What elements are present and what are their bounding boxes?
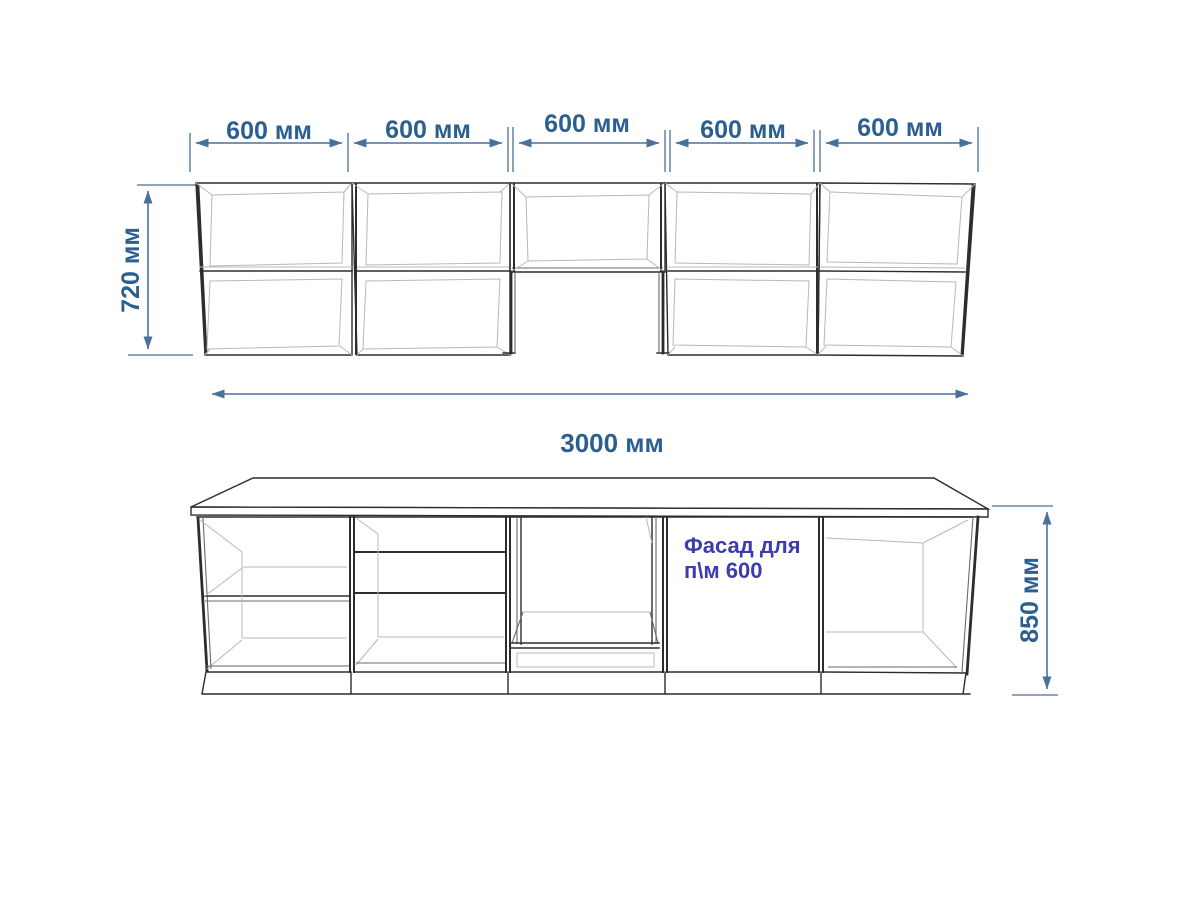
dimension-lower-height: 850 мм [992, 506, 1058, 695]
facade-note-line-2: п\м 600 [684, 558, 763, 583]
lower-cabinets-row: Фасад для п\м 600 [191, 478, 988, 694]
lower-divider-1 [350, 517, 354, 672]
kitchen-elevation-page: 600 мм 600 мм 600 мм 600 мм 600 мм 720 м… [0, 0, 1200, 900]
dimension-upper-height: 720 мм [117, 185, 197, 355]
dim-label-seg3: 600 мм [544, 110, 630, 138]
dim-label-720: 720 мм [117, 227, 145, 313]
dim-label-3000: 3000 мм [560, 428, 664, 458]
lower-cabinet-3-oven-cavity [510, 517, 663, 672]
countertop [191, 478, 988, 517]
upper-cabinet-5 [818, 183, 975, 356]
plinth [202, 672, 970, 694]
dimension-total-width: 3000 мм [212, 394, 968, 458]
lower-cabinet-4-dishwasher-facade: Фасад для п\м 600 [667, 533, 819, 672]
lower-cabinet-1-shelf-unit [198, 518, 350, 672]
dim-label-seg1: 600 мм [226, 117, 312, 145]
dim-label-seg2: 600 мм [385, 116, 471, 144]
upper-cabinet-1 [196, 183, 352, 355]
upper-cabinets-row [196, 183, 975, 356]
dimension-upper-segments: 600 мм 600 мм 600 мм 600 мм 600 мм [190, 110, 978, 172]
lower-divider-3 [663, 517, 667, 672]
lower-divider-4 [819, 517, 823, 672]
upper-side-panels-below-hood [503, 272, 669, 353]
upper-cabinet-4 [665, 183, 820, 355]
lower-divider-2 [506, 517, 510, 672]
dim-label-seg4: 600 мм [700, 116, 786, 144]
facade-note-line-1: Фасад для [684, 533, 801, 558]
upper-cabinet-2 [352, 183, 510, 355]
dim-label-seg5: 600 мм [857, 114, 943, 142]
upper-cabinet-3-hood [510, 183, 665, 272]
lower-cabinet-5-open-unit [823, 517, 978, 674]
dim-label-850: 850 мм [1016, 557, 1044, 643]
kitchen-elevation-drawing: 600 мм 600 мм 600 мм 600 мм 600 мм 720 м… [0, 0, 1200, 900]
lower-cabinet-2-drawer-unit [354, 518, 506, 672]
